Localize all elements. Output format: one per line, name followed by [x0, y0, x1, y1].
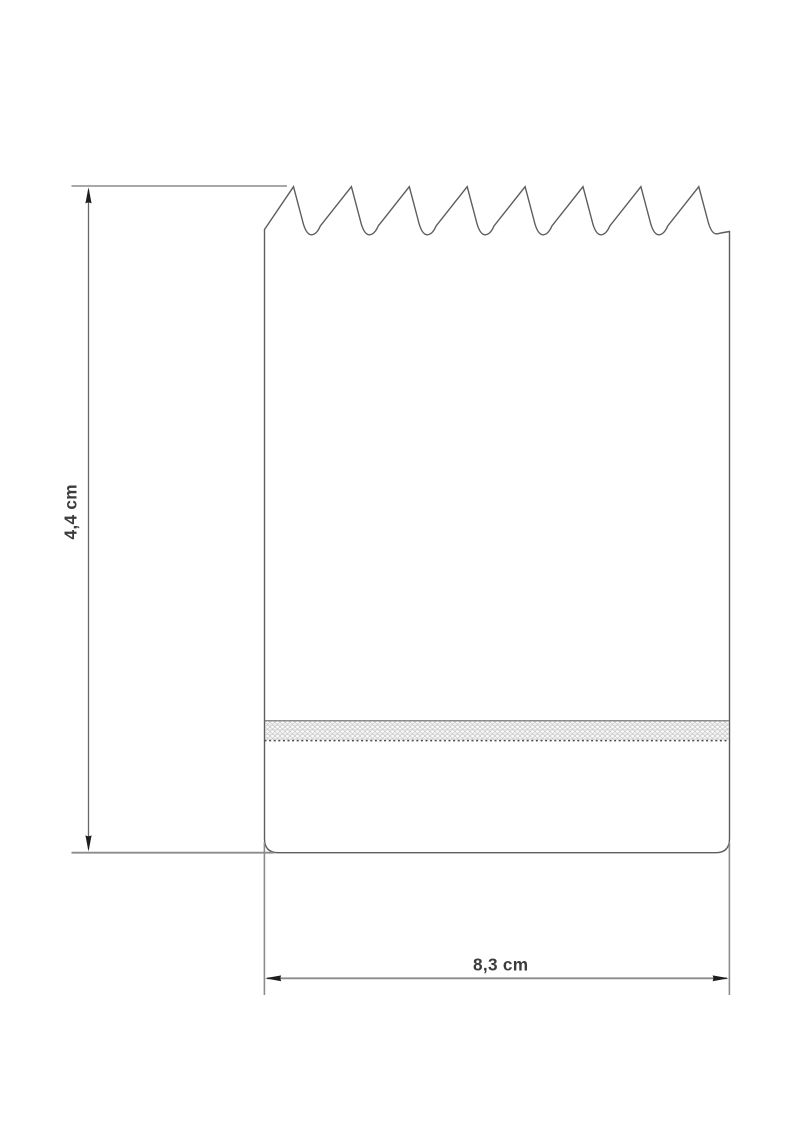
svg-text:4,4 cm: 4,4 cm	[61, 484, 81, 539]
svg-text:8,3 cm: 8,3 cm	[473, 954, 528, 974]
